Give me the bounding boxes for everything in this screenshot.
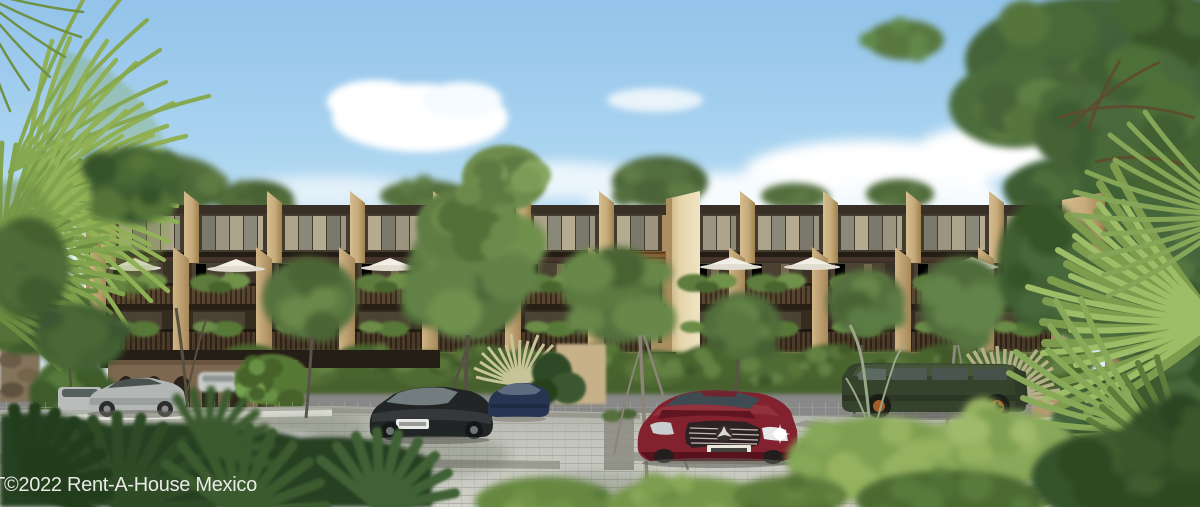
svg-text:©2022 Rent-A-House Mexico: ©2022 Rent-A-House Mexico: [4, 474, 257, 496]
